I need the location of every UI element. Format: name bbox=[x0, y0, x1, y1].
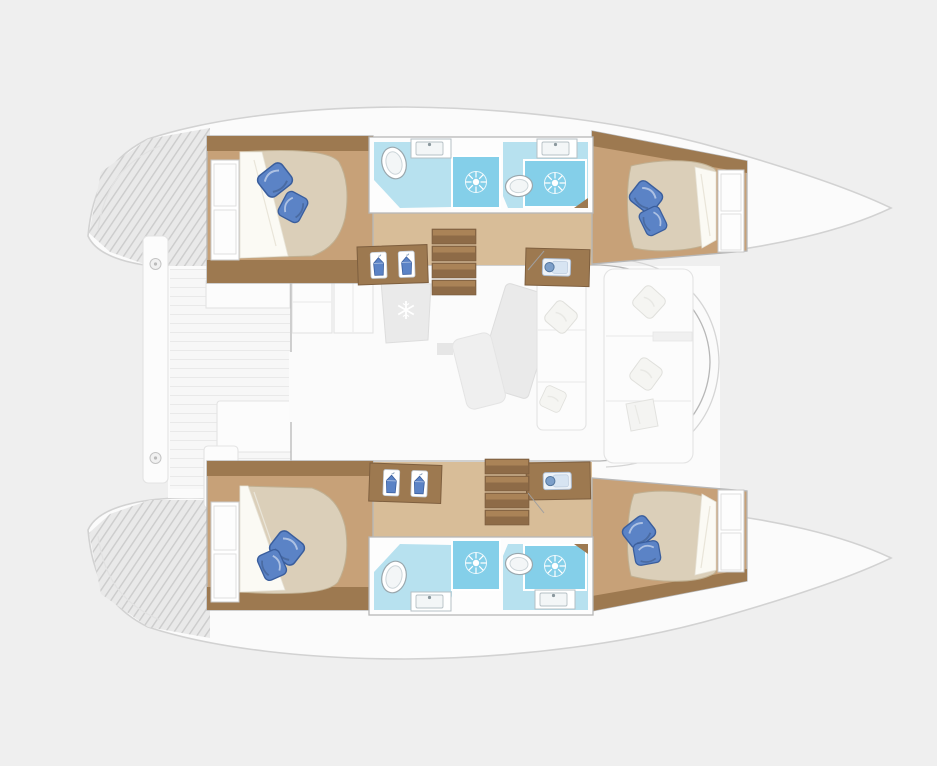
port-forward-bathroom bbox=[503, 139, 588, 208]
lounge-armrest bbox=[653, 332, 692, 341]
saloon bbox=[289, 258, 719, 467]
starboard-bathrooms bbox=[369, 537, 593, 615]
cockpit-bench-port bbox=[206, 281, 290, 308]
hanger-icon bbox=[398, 251, 415, 278]
shower-drain-icon bbox=[545, 556, 566, 577]
platform-beam bbox=[143, 236, 168, 483]
vanity-sink-icon bbox=[537, 139, 577, 158]
lounge-pillow bbox=[626, 399, 658, 431]
hanger-icon bbox=[411, 470, 428, 497]
shower-drain-icon bbox=[466, 553, 487, 574]
shelf-cell bbox=[721, 214, 741, 250]
starboard-forward-bathroom bbox=[503, 544, 588, 610]
cleat-pin bbox=[154, 262, 157, 265]
port-bathrooms bbox=[369, 137, 593, 213]
washbasin-icon bbox=[542, 258, 570, 276]
vanity-sink-icon bbox=[411, 139, 451, 158]
vanity-sink-icon bbox=[411, 592, 451, 611]
washbasin-icon bbox=[543, 472, 571, 489]
hanger-icon bbox=[383, 469, 400, 496]
berth-pillow-icon bbox=[633, 540, 662, 566]
floor-plan-canvas bbox=[0, 0, 937, 766]
wardrobe-cabinet bbox=[369, 463, 442, 503]
shelf-cell bbox=[721, 174, 741, 211]
shelf-cell bbox=[214, 164, 236, 206]
forward-lounge bbox=[604, 269, 693, 463]
cabin-footboard bbox=[207, 461, 373, 476]
cockpit-door-opening bbox=[289, 352, 293, 422]
cabin-headboard bbox=[207, 136, 373, 151]
saloon-sofa bbox=[537, 279, 586, 430]
shelf-cell bbox=[721, 494, 741, 530]
port-aft-cabin bbox=[207, 136, 373, 283]
shelf-cell bbox=[214, 554, 236, 598]
cabin-footboard bbox=[207, 260, 373, 283]
shelf-cell bbox=[214, 210, 236, 254]
shelf-cell bbox=[214, 506, 236, 550]
shower-drain-icon bbox=[466, 172, 487, 193]
starboard-sink-cabinet bbox=[526, 462, 591, 500]
vanity-sink-icon bbox=[535, 590, 575, 609]
saloon-stool bbox=[437, 343, 453, 355]
hanger-icon bbox=[370, 252, 387, 279]
port-sink-cabinet bbox=[525, 248, 590, 287]
port-wardrobe bbox=[357, 245, 428, 285]
galley-counter bbox=[292, 281, 332, 333]
shower-drain-icon bbox=[545, 173, 566, 194]
starboard-wardrobe bbox=[369, 463, 442, 503]
shelf-cell bbox=[721, 533, 741, 570]
swim-platform bbox=[143, 236, 168, 483]
wardrobe-cabinet bbox=[357, 245, 428, 285]
starboard-aft-cabin bbox=[207, 461, 373, 610]
catamaran-floor-plan bbox=[0, 0, 937, 766]
cleat-pin bbox=[154, 456, 157, 459]
